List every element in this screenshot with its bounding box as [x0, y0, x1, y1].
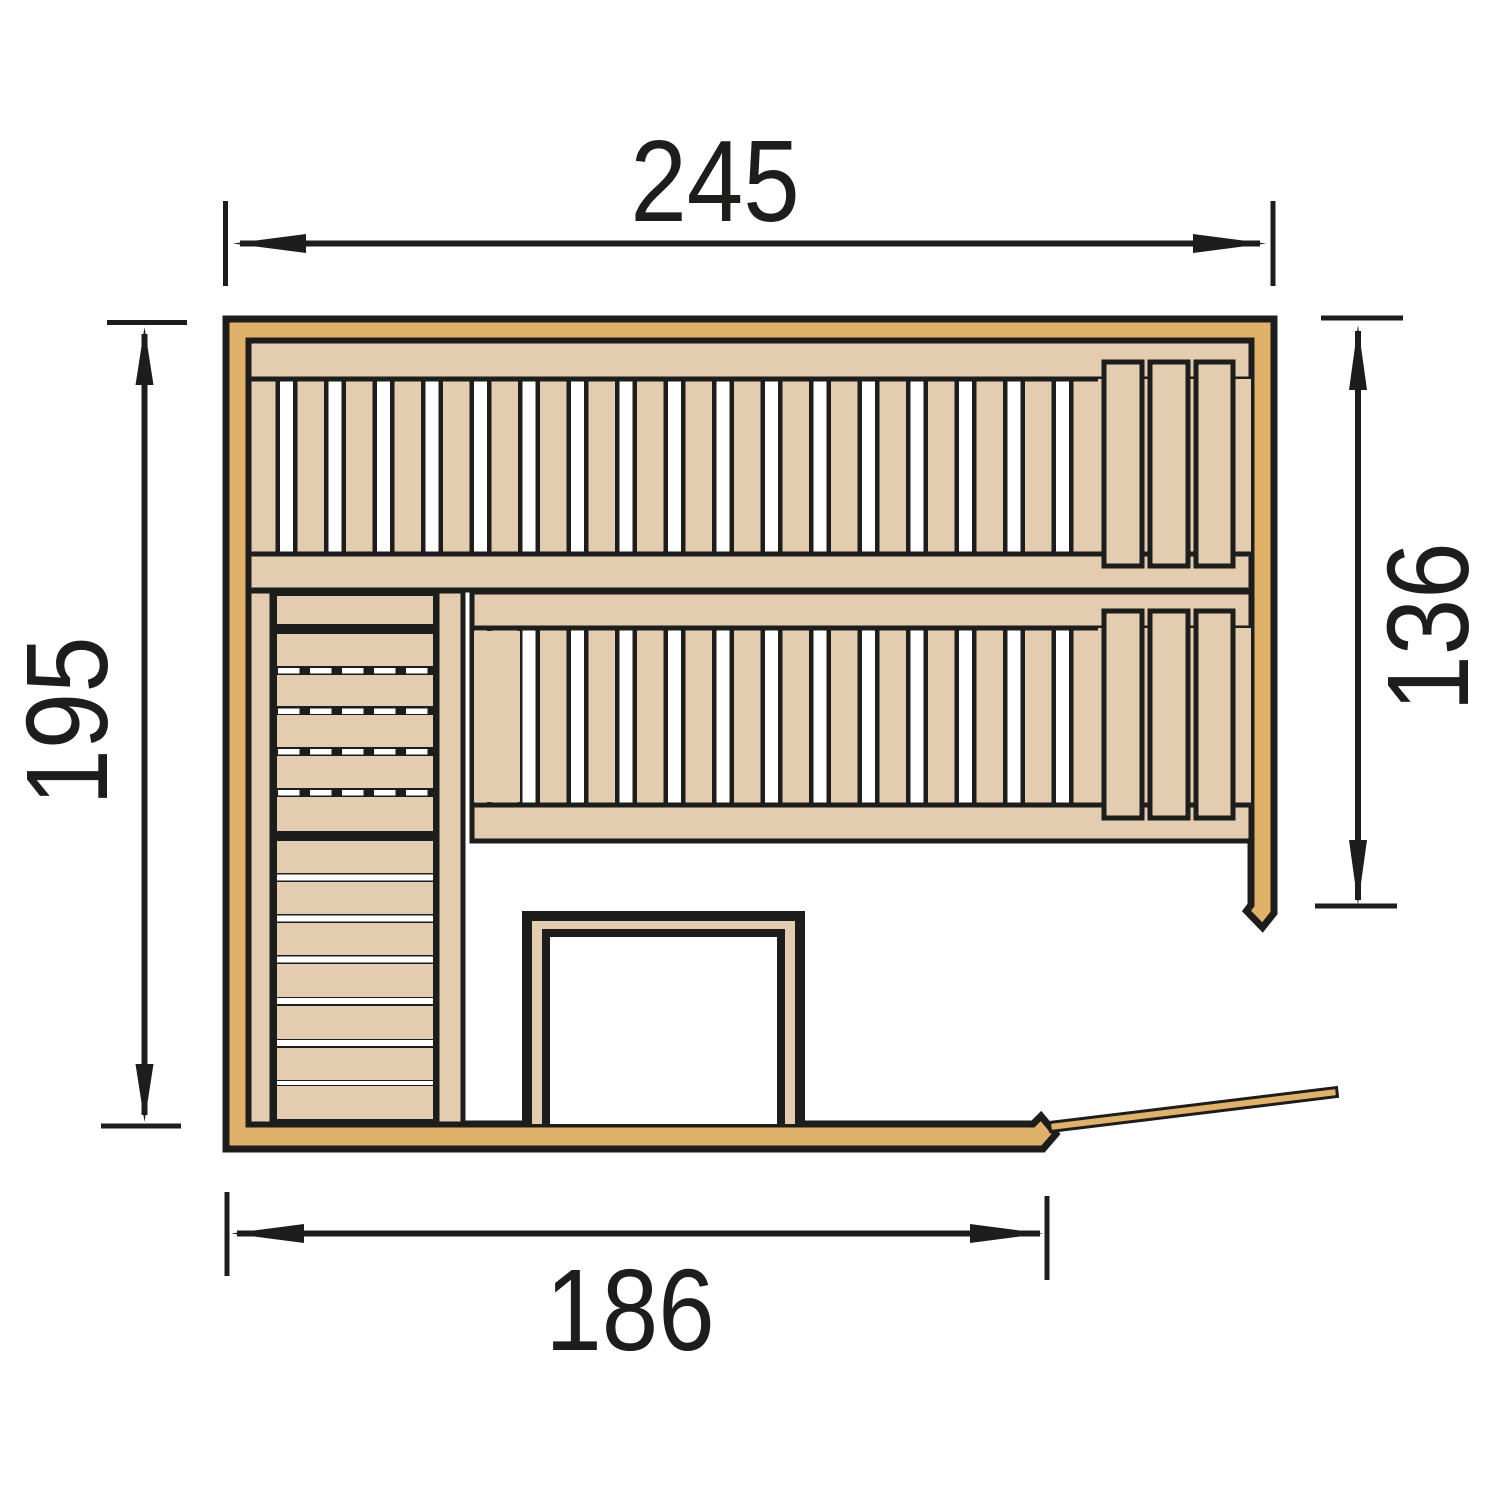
svg-text:245: 245 [630, 117, 799, 247]
svg-text:136: 136 [1364, 542, 1494, 711]
svg-text:195: 195 [3, 636, 133, 805]
svg-text:186: 186 [545, 1246, 714, 1376]
